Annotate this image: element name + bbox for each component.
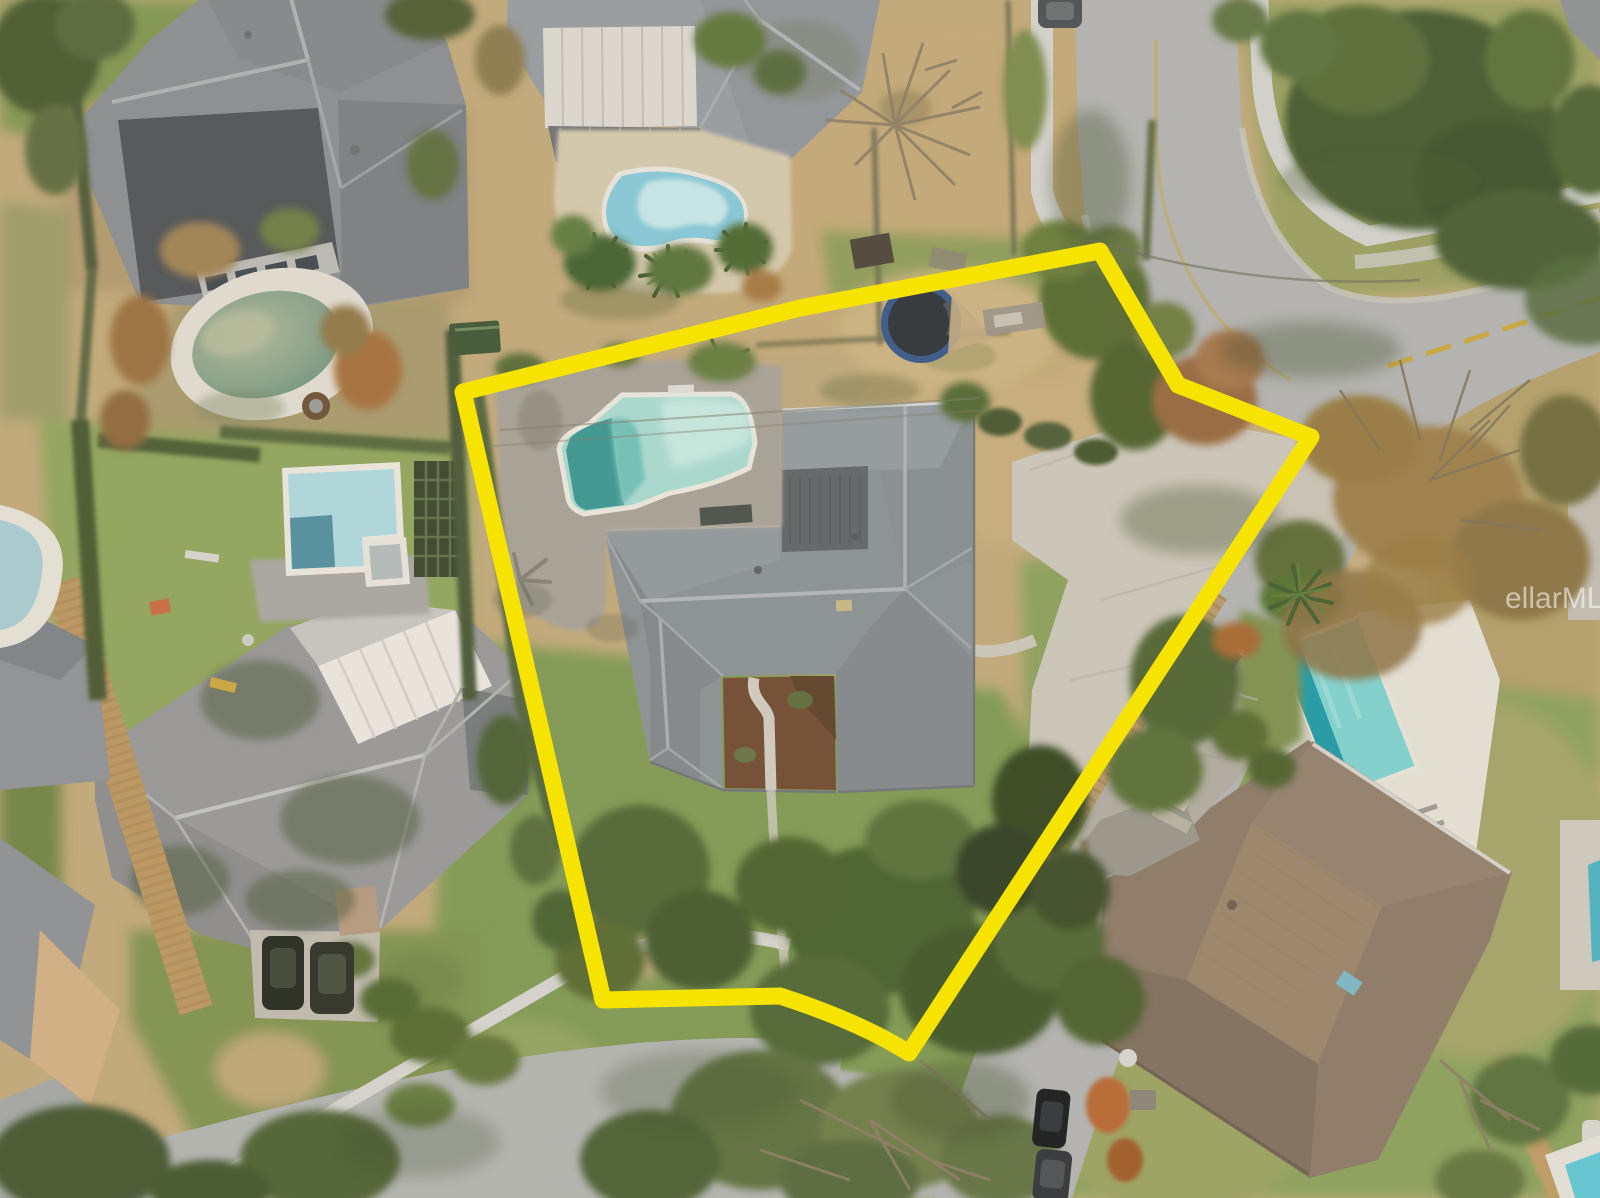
svg-text:ellarMLS: ellarMLS (1505, 582, 1600, 615)
